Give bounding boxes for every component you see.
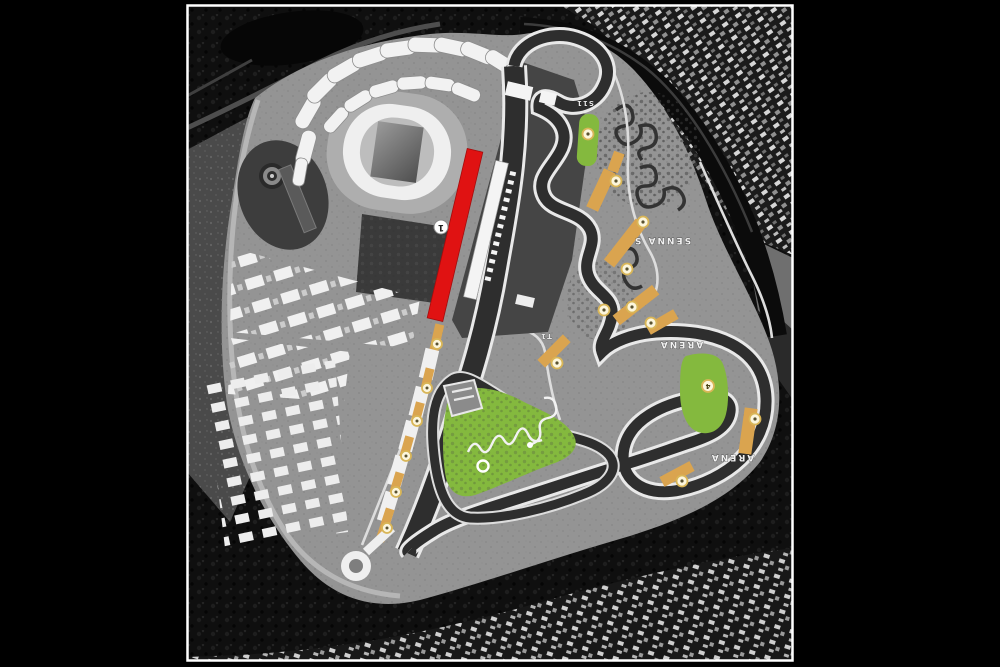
svg-text:1: 1 (438, 222, 444, 232)
screenshot-root: SENNA S ARENA ARENA S11 T1 1 4 (0, 0, 1000, 667)
track-marker (599, 305, 610, 316)
track-marker (422, 383, 432, 393)
track-marker (646, 318, 657, 329)
satellite-map: SENNA S ARENA ARENA S11 T1 1 4 (187, 2, 793, 661)
track-marker (677, 476, 688, 487)
track-marker (627, 302, 638, 313)
infield-dot (527, 442, 533, 448)
svg-text:4: 4 (705, 382, 710, 390)
stadium-pitch (370, 121, 423, 183)
label-arena-upper: ARENA (659, 339, 704, 349)
track-marker (382, 523, 392, 533)
green-area-east (680, 354, 728, 434)
track-marker (432, 339, 442, 349)
track-marker (611, 176, 622, 187)
track-marker (750, 414, 761, 425)
track-marker (401, 451, 411, 461)
track-marker: 4 (702, 380, 714, 392)
label-corner-t1: T1 (540, 332, 552, 340)
track-marker (622, 264, 633, 275)
label-senna-s: SENNA S (633, 235, 691, 245)
label-corner-s11: S11 (576, 99, 594, 107)
tree-cluster-east (596, 92, 700, 208)
track-marker (638, 217, 649, 228)
pit-entry-marker: 1 (434, 220, 448, 234)
track-marker (412, 416, 422, 426)
track-marker (391, 487, 401, 497)
label-arena-lower: ARENA (710, 452, 755, 462)
track-marker (583, 129, 594, 140)
parking-grid-south-west (205, 360, 348, 548)
circuit-map-svg: SENNA S ARENA ARENA S11 T1 1 4 (0, 0, 1000, 667)
track-marker (552, 358, 563, 369)
